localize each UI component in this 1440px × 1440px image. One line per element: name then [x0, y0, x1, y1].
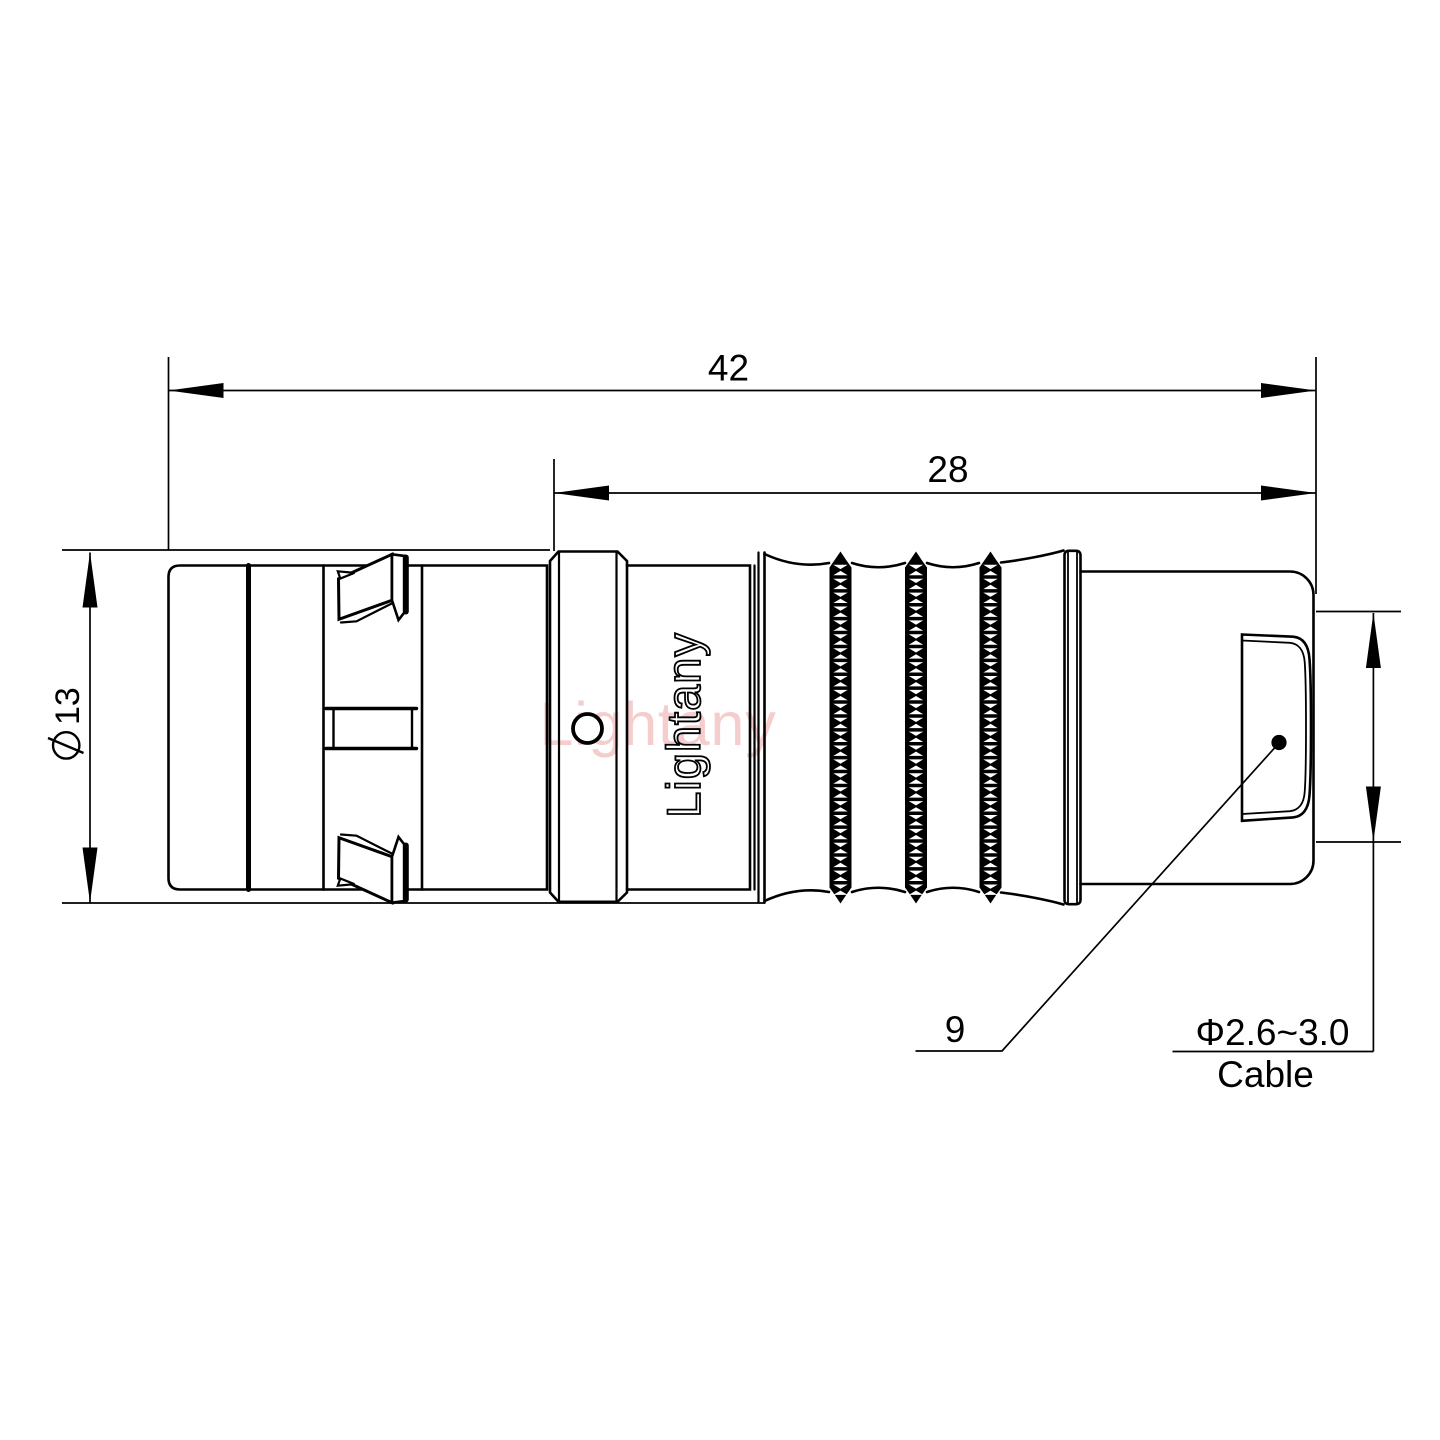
svg-text:42: 42 — [708, 348, 749, 389]
svg-text:Cable: Cable — [1217, 1054, 1314, 1095]
svg-text:Lightany: Lightany — [657, 632, 710, 818]
svg-text:9: 9 — [945, 1009, 966, 1050]
svg-text:Φ2.6~3.0: Φ2.6~3.0 — [1196, 1012, 1350, 1053]
svg-text:13: 13 — [49, 687, 87, 725]
svg-text:28: 28 — [927, 449, 968, 490]
